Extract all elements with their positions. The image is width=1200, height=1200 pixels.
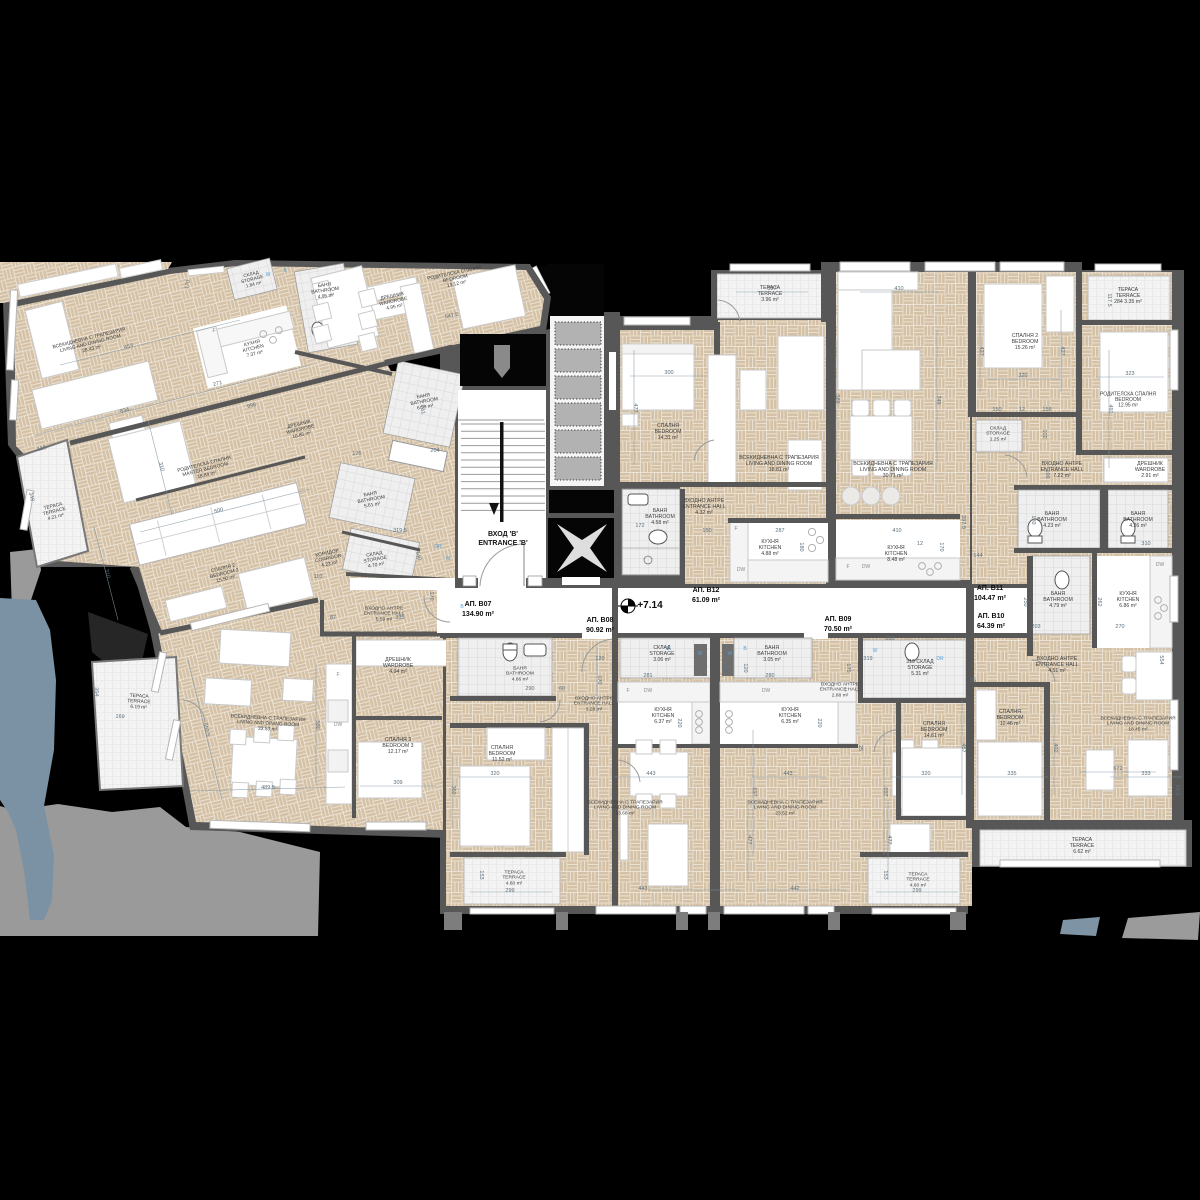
- svg-text:АП. B12: АП. B12: [693, 587, 720, 594]
- svg-text:14.31 m²: 14.31 m²: [658, 435, 679, 441]
- svg-text:443: 443: [783, 771, 792, 777]
- svg-text:АП. B09: АП. B09: [825, 616, 852, 623]
- svg-text:120: 120: [722, 663, 728, 672]
- svg-text:360: 360: [450, 785, 456, 794]
- svg-text:354: 354: [93, 687, 99, 696]
- svg-text:90.92 m²: 90.92 m²: [586, 627, 615, 634]
- svg-text:203: 203: [1031, 624, 1040, 630]
- svg-text:18.45 m²: 18.45 m²: [1128, 726, 1148, 732]
- svg-text:427: 427: [1059, 346, 1065, 355]
- svg-text:ВСЕКИДНЕВНА С ТРАПЕЗАРИЯ: ВСЕКИДНЕВНА С ТРАПЕЗАРИЯ: [1101, 715, 1176, 721]
- svg-text:ENTRANCE 'B': ENTRANCE 'B': [478, 540, 528, 547]
- svg-text:DR: DR: [434, 544, 442, 550]
- svg-text:100: 100: [1044, 469, 1050, 478]
- svg-text:64.39 m²: 64.39 m²: [977, 623, 1006, 630]
- svg-text:410: 410: [892, 528, 901, 534]
- svg-text:1.25 m²: 1.25 m²: [990, 436, 1007, 442]
- svg-text:АП. B11: АП. B11: [977, 585, 1003, 592]
- svg-text:4.94 m²: 4.94 m²: [389, 669, 407, 675]
- svg-text:477: 477: [746, 835, 752, 844]
- svg-text:327: 327: [767, 286, 776, 292]
- svg-text:3.96 m²: 3.96 m²: [761, 297, 779, 303]
- svg-text:60: 60: [559, 686, 565, 692]
- svg-text:120: 120: [742, 663, 748, 672]
- svg-text:F: F: [846, 564, 849, 570]
- svg-text:204: 204: [430, 448, 439, 454]
- svg-text:319: 319: [863, 656, 872, 662]
- svg-text:12: 12: [917, 541, 923, 547]
- svg-text:580: 580: [314, 720, 320, 729]
- svg-text:335: 335: [1007, 771, 1016, 777]
- svg-text:397.5: 397.5: [960, 515, 966, 529]
- svg-text:TERRACE: TERRACE: [502, 875, 526, 881]
- svg-text:477: 477: [632, 403, 638, 412]
- svg-text:180: 180: [798, 542, 804, 551]
- svg-text:697: 697: [751, 787, 757, 796]
- svg-text:61.09 m²: 61.09 m²: [692, 597, 721, 604]
- svg-text:F: F: [336, 672, 339, 678]
- svg-text:ВСЕКИДНЕВНА С ТРАПЕЗАРИЯ: ВСЕКИДНЕВНА С ТРАПЕЗАРИЯ: [588, 799, 663, 805]
- svg-text:443: 443: [646, 771, 655, 777]
- svg-text:402: 402: [1052, 743, 1058, 752]
- svg-text:14.61 m²: 14.61 m²: [924, 733, 945, 739]
- svg-text:172: 172: [635, 523, 644, 529]
- svg-text:70.50 m²: 70.50 m²: [824, 626, 853, 633]
- svg-text:3.28 m²: 3.28 m²: [586, 706, 603, 712]
- svg-text:11.52 m²: 11.52 m²: [492, 757, 512, 763]
- svg-text:320: 320: [1018, 373, 1027, 379]
- svg-text:158: 158: [1042, 407, 1051, 413]
- svg-text:F: F: [212, 328, 215, 334]
- svg-text:F: F: [734, 526, 737, 532]
- svg-text:150: 150: [992, 407, 1001, 413]
- svg-text:6.19 m²: 6.19 m²: [130, 704, 147, 711]
- svg-text:18.81 m²: 18.81 m²: [769, 467, 790, 473]
- svg-text:335: 335: [395, 615, 404, 621]
- svg-text:220: 220: [676, 718, 682, 727]
- svg-text:ТЕРАСА: ТЕРАСА: [908, 871, 928, 877]
- svg-text:LIVING AND DINING ROOM: LIVING AND DINING ROOM: [1107, 721, 1170, 727]
- svg-text:DW: DW: [737, 567, 746, 573]
- svg-text:250: 250: [1022, 597, 1028, 606]
- svg-text:320: 320: [921, 771, 930, 777]
- svg-text:4.23 m²: 4.23 m²: [1043, 523, 1061, 529]
- svg-text:ВХОДНО АНТРЕ: ВХОДНО АНТРЕ: [365, 605, 404, 611]
- svg-text:BATHROOM: BATHROOM: [506, 671, 534, 677]
- svg-text:697: 697: [882, 787, 888, 796]
- svg-text:175: 175: [352, 451, 361, 457]
- svg-text:АП. B10: АП. B10: [978, 613, 1005, 620]
- svg-text:W: W: [873, 648, 878, 654]
- svg-text:5.31 m²: 5.31 m²: [911, 671, 929, 677]
- svg-text:299: 299: [505, 888, 514, 894]
- svg-text:4.60 m²: 4.60 m²: [506, 880, 523, 886]
- svg-text:7.22 m²: 7.22 m²: [1053, 473, 1071, 479]
- svg-text:170: 170: [938, 542, 944, 551]
- svg-text:300: 300: [664, 370, 673, 376]
- svg-text:LIVING AND DINING ROOM: LIVING AND DINING ROOM: [594, 805, 657, 811]
- svg-text:23.52 m²: 23.52 m²: [775, 810, 795, 816]
- svg-text:4.26 m²: 4.26 m²: [1129, 523, 1147, 529]
- svg-text:672: 672: [1113, 766, 1122, 772]
- svg-text:W: W: [728, 651, 733, 657]
- svg-text:DW: DW: [862, 564, 871, 570]
- svg-text:ВХОД 'В': ВХОД 'В': [488, 531, 518, 538]
- svg-text:АП. B07: АП. B07: [465, 601, 492, 608]
- svg-text:491: 491: [1107, 404, 1113, 413]
- svg-text:STORAGE: STORAGE: [986, 431, 1011, 437]
- svg-text:4.32 m²: 4.32 m²: [695, 510, 713, 516]
- svg-text:4.88 m²: 4.88 m²: [761, 551, 779, 557]
- svg-text:5.59 m²: 5.59 m²: [376, 616, 393, 622]
- svg-text:175: 175: [845, 663, 851, 672]
- svg-text:ВСЕКИДНЕВНА С ТРАПЕЗАРИЯ: ВСЕКИДНЕВНА С ТРАПЕЗАРИЯ: [748, 799, 823, 805]
- svg-text:3.05 m²: 3.05 m²: [763, 657, 781, 663]
- svg-text:DW: DW: [762, 688, 771, 694]
- svg-text:477: 477: [886, 835, 892, 844]
- svg-text:W: W: [698, 651, 703, 657]
- svg-text:281: 281: [643, 673, 652, 679]
- svg-text:284 3.35 m²: 284 3.35 m²: [1114, 299, 1142, 305]
- svg-text:DW: DW: [644, 688, 653, 694]
- svg-text:309: 309: [393, 780, 402, 786]
- svg-text:2.88 m²: 2.88 m²: [832, 692, 849, 698]
- svg-text:W: W: [446, 556, 451, 562]
- svg-text:ENTRANCE HALL: ENTRANCE HALL: [820, 687, 861, 693]
- svg-text:ВХОДНО АНТРЕ: ВХОДНО АНТРЕ: [575, 695, 614, 701]
- svg-text:120: 120: [595, 656, 604, 662]
- svg-text:4.66 m²: 4.66 m²: [512, 676, 529, 682]
- svg-text:427: 427: [978, 346, 984, 355]
- svg-text:153: 153: [882, 870, 888, 879]
- svg-text:25: 25: [857, 745, 863, 751]
- svg-text:LIVING AND DINING ROOM: LIVING AND DINING ROOM: [754, 805, 817, 811]
- svg-text:+7.14: +7.14: [637, 600, 663, 611]
- svg-text:410: 410: [894, 286, 903, 292]
- svg-text:30.71 m²: 30.71 m²: [883, 473, 904, 479]
- svg-text:180: 180: [1030, 515, 1036, 524]
- svg-text:443: 443: [638, 886, 647, 892]
- svg-text:457: 457: [960, 743, 966, 752]
- svg-text:23.68 m²: 23.68 m²: [615, 810, 635, 816]
- svg-text:БАНЯ: БАНЯ: [513, 665, 527, 671]
- svg-text:6.62 m²: 6.62 m²: [1073, 849, 1091, 855]
- svg-text:287: 287: [775, 528, 784, 534]
- svg-text:749: 749: [935, 395, 941, 404]
- svg-text:33.53 m²: 33.53 m²: [258, 726, 278, 733]
- svg-text:15.26 m²: 15.26 m²: [1015, 345, 1036, 351]
- svg-text:СКЛАД: СКЛАД: [990, 425, 1007, 431]
- svg-text:АП. B08: АП. B08: [587, 617, 614, 624]
- svg-text:86.5: 86.5: [1174, 785, 1180, 796]
- svg-text:DR: DR: [936, 656, 944, 662]
- svg-text:270: 270: [1115, 624, 1124, 630]
- svg-text:220: 220: [816, 718, 822, 727]
- svg-text:12.17 m²: 12.17 m²: [388, 749, 409, 755]
- svg-text:25: 25: [970, 678, 976, 684]
- svg-text:8.48 m²: 8.48 m²: [887, 557, 905, 563]
- svg-text:589: 589: [834, 394, 840, 403]
- svg-text:6.35 m²: 6.35 m²: [781, 719, 799, 725]
- svg-text:4.51 m²: 4.51 m²: [1048, 668, 1066, 674]
- svg-text:319.5: 319.5: [393, 528, 407, 534]
- svg-text:87: 87: [330, 615, 336, 621]
- svg-text:2.91 m²: 2.91 m²: [1141, 473, 1159, 479]
- svg-text:299: 299: [912, 888, 921, 894]
- svg-text:W: W: [266, 272, 271, 278]
- svg-text:554: 554: [1158, 655, 1164, 664]
- svg-text:153: 153: [478, 870, 484, 879]
- svg-text:144: 144: [973, 553, 982, 559]
- svg-text:4.58 m²: 4.58 m²: [651, 520, 669, 526]
- svg-text:3.06 m²: 3.06 m²: [653, 657, 671, 663]
- svg-text:323: 323: [1125, 371, 1134, 377]
- svg-text:6.86 m²: 6.86 m²: [1119, 603, 1137, 609]
- svg-text:F: F: [626, 688, 629, 694]
- svg-text:12.95 m²: 12.95 m²: [1118, 403, 1138, 409]
- svg-text:442: 442: [790, 886, 799, 892]
- svg-text:12.46 m²: 12.46 m²: [1000, 721, 1021, 727]
- svg-text:ТЕРАСА: ТЕРАСА: [504, 869, 524, 875]
- svg-text:170: 170: [428, 591, 434, 600]
- svg-text:170: 170: [596, 675, 602, 684]
- svg-text:310: 310: [1141, 541, 1150, 547]
- svg-text:150: 150: [885, 636, 894, 642]
- svg-text:150: 150: [702, 528, 711, 534]
- svg-text:6.37 m²: 6.37 m²: [654, 719, 672, 725]
- svg-text:489.5: 489.5: [261, 785, 275, 791]
- svg-text:ВХОДНО АНТРЕ: ВХОДНО АНТРЕ: [821, 681, 860, 687]
- svg-text:262: 262: [1096, 597, 1102, 606]
- svg-text:280: 280: [765, 673, 774, 679]
- svg-text:333: 333: [1141, 771, 1150, 777]
- svg-text:169: 169: [115, 714, 124, 720]
- svg-text:134.90 m²: 134.90 m²: [462, 611, 495, 618]
- svg-text:290: 290: [525, 686, 534, 692]
- svg-text:4.79 m²: 4.79 m²: [1049, 603, 1067, 609]
- svg-text:TERRACE: TERRACE: [906, 877, 930, 883]
- svg-text:DW: DW: [334, 722, 343, 728]
- svg-text:117.5: 117.5: [1106, 293, 1112, 306]
- svg-text:110: 110: [314, 574, 323, 580]
- svg-text:102: 102: [1041, 429, 1047, 438]
- svg-text:320: 320: [490, 771, 499, 777]
- svg-text:DW: DW: [1156, 562, 1165, 568]
- svg-text:12: 12: [1019, 407, 1025, 413]
- svg-text:ENTRANCE HALL: ENTRANCE HALL: [574, 701, 615, 707]
- svg-text:104.47 m²: 104.47 m²: [974, 595, 1007, 602]
